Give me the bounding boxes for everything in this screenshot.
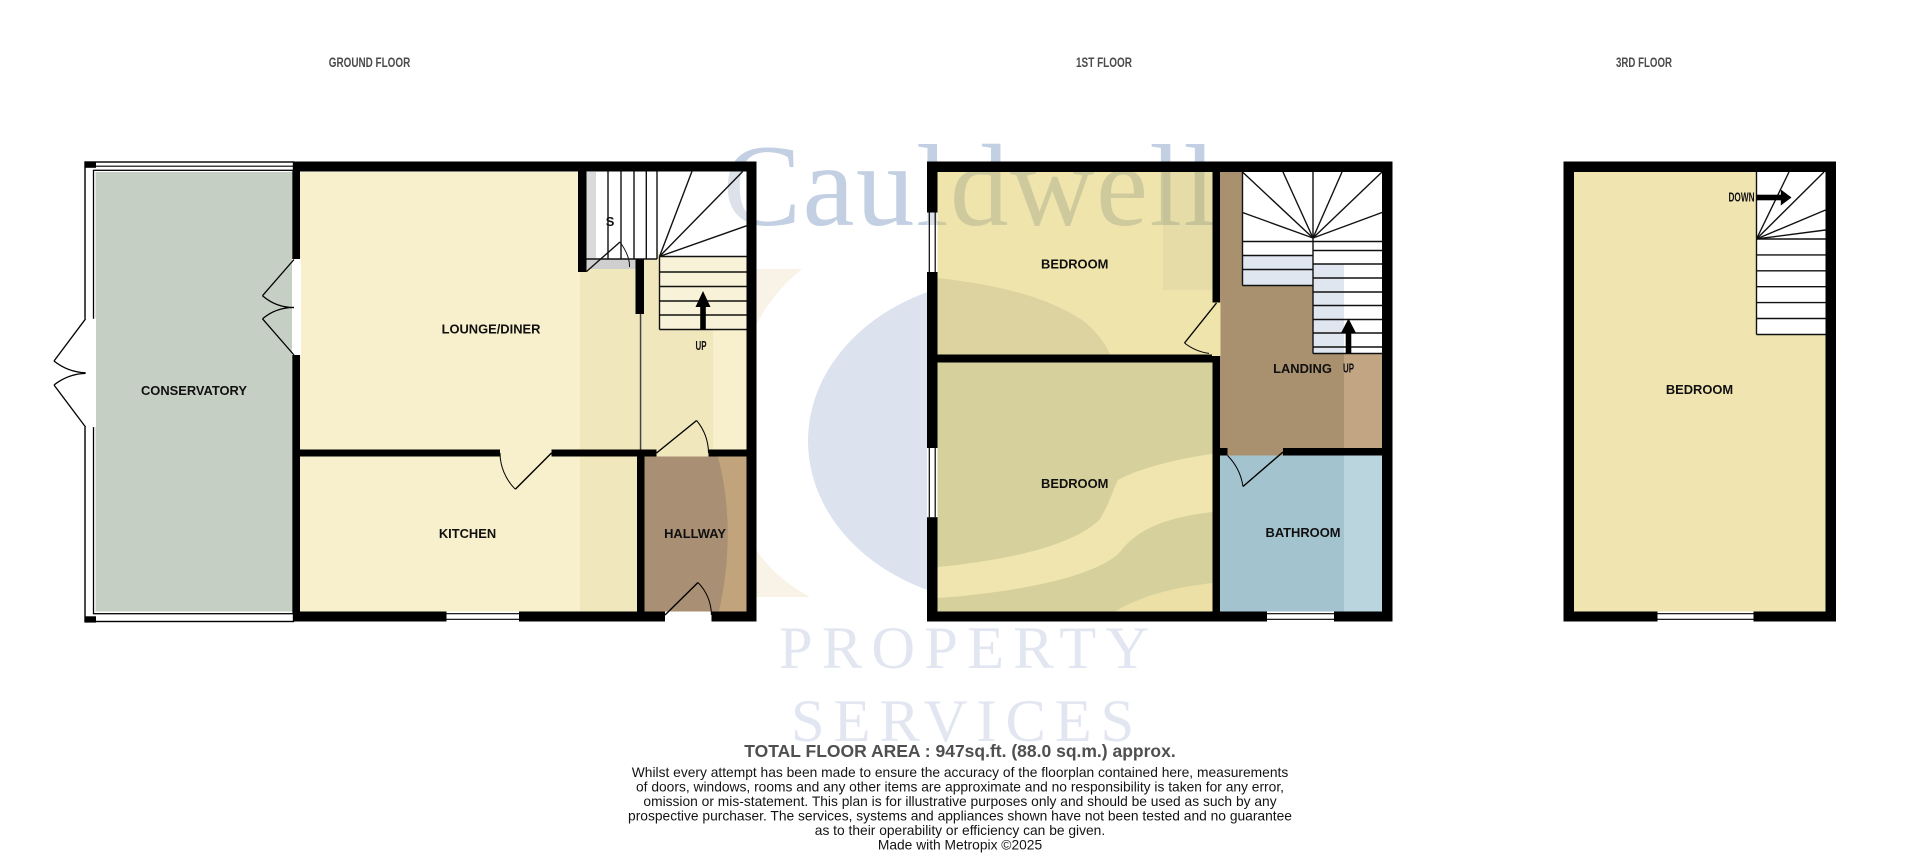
svg-text:LOUNGE/DINER: LOUNGE/DINER (442, 322, 542, 337)
svg-text:BEDROOM: BEDROOM (1041, 476, 1108, 491)
svg-text:PROPERTY: PROPERTY (779, 615, 1158, 682)
svg-text:BEDROOM: BEDROOM (1041, 257, 1108, 272)
svg-text:UP: UP (696, 338, 707, 353)
svg-text:HALLWAY: HALLWAY (664, 526, 726, 541)
svg-text:Whilst every attempt has been: Whilst every attempt has been made to en… (632, 765, 1289, 780)
svg-text:prospective purchaser. The ser: prospective purchaser. The services, sys… (628, 809, 1292, 824)
svg-text:as to their operability or eff: as to their operability or efficiency ca… (815, 823, 1105, 838)
svg-text:1ST FLOOR: 1ST FLOOR (1076, 55, 1132, 70)
svg-text:S: S (606, 214, 615, 229)
svg-text:DOWN: DOWN (1729, 190, 1755, 205)
svg-text:BATHROOM: BATHROOM (1266, 525, 1341, 540)
svg-text:GROUND FLOOR: GROUND FLOOR (329, 55, 411, 70)
svg-text:LANDING: LANDING (1273, 361, 1332, 376)
svg-text:Made with Metropix ©2025: Made with Metropix ©2025 (878, 838, 1043, 853)
svg-text:UP: UP (1343, 361, 1354, 376)
svg-text:of doors, windows, rooms and a: of doors, windows, rooms and any other i… (636, 780, 1284, 795)
svg-text:omission or mis-statement. Thi: omission or mis-statement. This plan is … (643, 794, 1276, 809)
svg-text:BEDROOM: BEDROOM (1666, 382, 1733, 397)
svg-text:TOTAL FLOOR AREA : 947sq.ft. (: TOTAL FLOOR AREA : 947sq.ft. (88.0 sq.m.… (744, 741, 1175, 761)
svg-text:KITCHEN: KITCHEN (439, 526, 496, 541)
svg-text:CONSERVATORY: CONSERVATORY (141, 383, 247, 398)
svg-text:3RD FLOOR: 3RD FLOOR (1616, 55, 1672, 70)
